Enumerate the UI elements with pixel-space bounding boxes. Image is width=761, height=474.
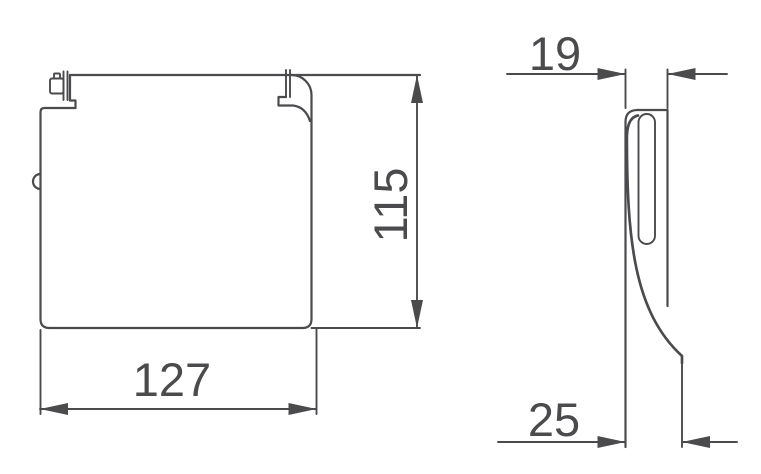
height-arrow-top — [411, 75, 423, 103]
side-view-slot — [639, 114, 656, 244]
technical-drawing-page: 115 127 19 — [0, 0, 761, 474]
left-screw-cap — [54, 74, 60, 79]
side-bottom-arrow-right — [682, 436, 710, 448]
height-dimension: 115 — [312, 75, 424, 328]
width-dimension-label: 127 — [133, 353, 211, 406]
height-arrow-bottom — [411, 300, 423, 328]
front-view — [33, 70, 420, 328]
side-top-arrow-right — [668, 68, 696, 80]
side-bottom-dimension-label: 25 — [528, 393, 580, 446]
side-view — [626, 110, 683, 447]
side-top-dimension-label: 19 — [529, 27, 581, 80]
side-bottom-width-dimension: 25 — [498, 358, 737, 448]
height-dimension-label: 115 — [364, 168, 417, 243]
width-dimension: 127 — [40, 329, 317, 415]
side-bottom-arrow-left — [598, 436, 626, 448]
side-top-extension-lines — [626, 70, 668, 109]
width-arrow-left — [40, 403, 68, 415]
right-tab-bracket — [279, 97, 311, 121]
side-top-arrow-left — [598, 68, 626, 80]
width-arrow-right — [289, 403, 317, 415]
dimension-drawing-canvas: 115 127 19 — [0, 0, 761, 474]
side-top-width-dimension: 19 — [507, 27, 727, 108]
front-view-outline — [41, 75, 312, 328]
side-view-back-plate — [626, 110, 668, 447]
left-screw-head — [50, 79, 64, 94]
left-edge-hinge-bump — [33, 174, 41, 189]
